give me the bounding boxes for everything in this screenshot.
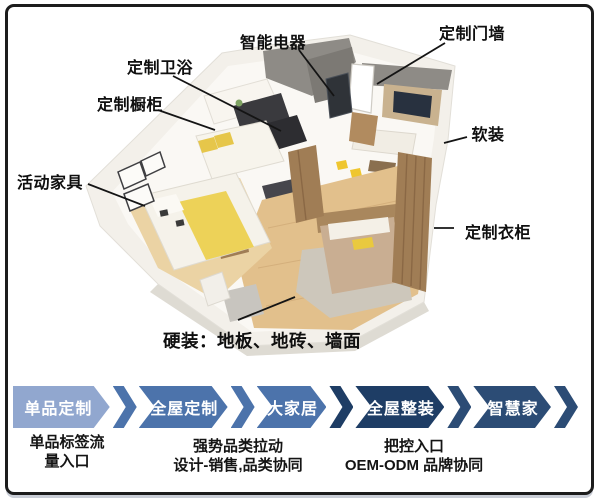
process-stage-3: 大家居 [257,386,356,428]
chevron-separator-icon [447,386,471,428]
process-chevron: 全屋整装 [355,386,444,428]
process-chevron: 全屋定制 [139,386,228,428]
chevron-separator-icon [329,386,353,428]
chevron-separator-icon [554,386,578,428]
process-chevron: 单品定制 [13,386,110,428]
chevron-separator-icon [113,386,137,428]
label-smart-appliances: 智能电器 [240,29,306,53]
note-line: 量入口 [29,453,104,472]
note-line: 设计-销售,品类协同 [173,457,302,476]
note-line: 强势品类拉动 [173,438,302,457]
process-stage-label: 全屋定制 [139,386,228,428]
note-line: 把控入口 [345,438,483,457]
process-chevron: 大家居 [257,386,327,428]
process-stage-label: 单品定制 [13,386,110,428]
kitchen-plant [236,100,243,107]
process-strip: 单品定制 全屋定制 大家居 全屋整装 智慧家 [13,386,580,428]
process-stage-label: 全屋整装 [355,386,444,428]
slide: 智能电器 定制门墙 定制卫浴 定制橱柜 活动家具 软装 定制衣柜 硬装：地板、地… [0,0,600,504]
label-custom-wardrobe: 定制衣柜 [465,219,531,243]
note-line: 单品标签流 [29,434,104,453]
process-stage-1: 单品定制 [13,386,139,428]
smart-appliance-column [326,73,352,118]
label-movable-furniture: 活动家具 [17,169,83,193]
apartment-render [0,0,600,504]
process-stage-2: 全屋定制 [139,386,257,428]
process-chevron: 智慧家 [473,386,551,428]
label-custom-cabinets: 定制橱柜 [97,91,163,115]
process-note-1: 单品标签流 量入口 [29,434,104,471]
process-stage-label: 智慧家 [473,386,551,428]
custom-door [349,64,374,113]
chevron-separator-icon [231,386,255,428]
label-soft-furnishing: 软装 [471,121,504,145]
process-stage-5: 智慧家 [473,386,580,428]
process-stage-label: 大家居 [257,386,327,428]
process-stage-4: 全屋整装 [355,386,473,428]
process-note-3: 把控入口 OEM-ODM 品牌协同 [345,438,483,475]
note-line: OEM-ODM 品牌协同 [345,457,483,476]
label-custom-door-wall: 定制门墙 [439,20,505,44]
label-custom-bathroom: 定制卫浴 [127,54,193,78]
entry-cabinet [349,112,378,146]
process-note-2: 强势品类拉动 设计-销售,品类协同 [173,438,302,475]
label-hard-furnishing: 硬装：地板、地砖、墙面 [163,328,361,353]
